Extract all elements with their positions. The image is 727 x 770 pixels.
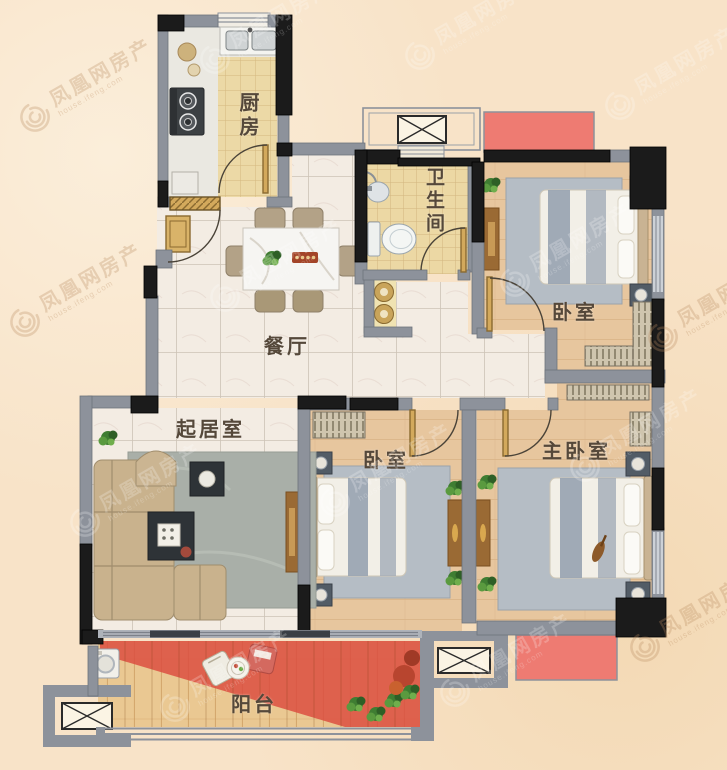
balcony-sliding-door: [98, 630, 422, 638]
entry-door-mat: [166, 216, 190, 252]
side-table: [190, 462, 224, 496]
ac-platform-top: [484, 112, 594, 152]
bathroom-floor: [367, 162, 468, 274]
balcony-table: [227, 657, 249, 679]
master-bed: [550, 476, 653, 580]
stove: [170, 88, 204, 135]
bedroom-top-tv-stand: [484, 208, 499, 270]
kitchen-sink: [220, 27, 282, 55]
wardrobe: [313, 412, 365, 438]
living-tv-panel: [286, 492, 298, 572]
wardrobe: [633, 302, 652, 366]
dining-chair: [293, 208, 323, 230]
floor-plan-drawing: [0, 0, 727, 770]
kitchen-window: [218, 13, 270, 27]
dining-chair: [293, 290, 323, 312]
floor-plan-canvas: 厨房 卫生间 卧室 餐厅 起居室 卧室 主卧室 阳台 凤凰网房产house.if…: [0, 0, 727, 770]
wardrobe: [567, 385, 649, 400]
balcony-chair-red: [246, 643, 278, 674]
kitchen-plate: [188, 64, 200, 76]
dining-table: [243, 228, 339, 290]
wardrobe: [585, 346, 633, 366]
toilet: [368, 222, 416, 256]
dining-chair: [255, 290, 285, 312]
kitchen-bowl: [178, 43, 196, 61]
bottom-window-niche: [420, 631, 508, 741]
bedroom-middle-bed: [308, 476, 406, 578]
armchair: [136, 451, 176, 486]
ac-platform-bottom: [516, 635, 617, 680]
coffee-table: [148, 512, 194, 560]
dining-chair: [255, 208, 285, 230]
balcony-window: [96, 727, 421, 741]
wardrobe: [630, 412, 651, 446]
kitchen-appliance: [172, 172, 198, 194]
